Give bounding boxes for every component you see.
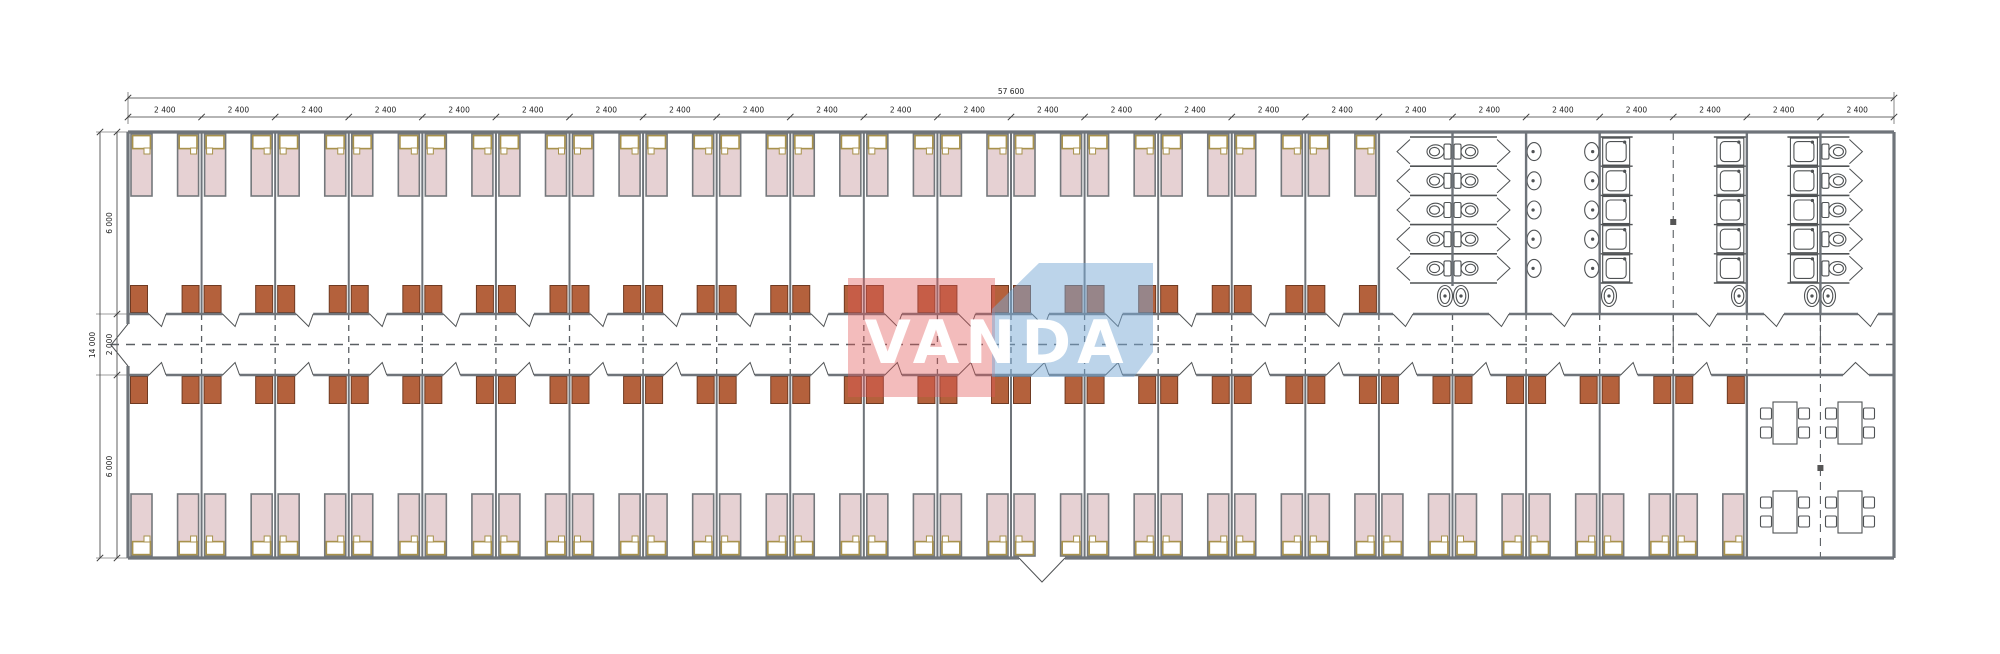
bed-pillow xyxy=(942,542,960,555)
shower-tray-inner xyxy=(1794,142,1814,162)
toilet-bowl-inner xyxy=(1833,264,1843,272)
toilet-icon xyxy=(1454,173,1478,188)
blanket-fold xyxy=(264,536,270,542)
blanket-fold xyxy=(1736,536,1742,542)
door-swing xyxy=(1179,314,1196,327)
wardrobe xyxy=(476,377,493,404)
shower-icon xyxy=(1790,197,1817,224)
stall-door xyxy=(1849,227,1862,251)
toilet-tank xyxy=(1822,173,1829,188)
wardrobe xyxy=(1602,377,1619,404)
dim-module-label: 2 400 xyxy=(375,106,397,115)
shower-icon xyxy=(1790,167,1817,194)
stall-door xyxy=(1397,140,1410,164)
door-swing xyxy=(517,314,534,327)
stall-door xyxy=(1849,198,1862,222)
bed-pillow xyxy=(1430,542,1448,555)
floor-plan-canvas: 57 6002 4002 4002 4002 4002 4002 4002 40… xyxy=(0,0,2000,654)
bed-pillow xyxy=(721,136,739,149)
bed-pillow xyxy=(1062,542,1080,555)
shower-icon xyxy=(1603,167,1630,194)
blanket-fold xyxy=(427,536,433,542)
bed-pillow xyxy=(621,136,639,149)
bed-pillow xyxy=(1283,136,1301,149)
bed-pillow xyxy=(1089,136,1107,149)
shower-drain xyxy=(1811,199,1813,201)
shower-drain xyxy=(1624,170,1626,172)
toilet-bowl-inner xyxy=(1466,206,1476,214)
bed xyxy=(1281,494,1302,556)
door-swing xyxy=(591,314,608,327)
wardrobe xyxy=(793,286,810,313)
wardrobe xyxy=(1161,286,1178,313)
bed-pillow xyxy=(280,542,298,555)
bed xyxy=(251,134,272,196)
bed xyxy=(398,134,419,196)
basin-tap xyxy=(1532,151,1534,153)
washbasin-icon xyxy=(1526,201,1541,220)
blanket-fold xyxy=(280,536,286,542)
bed xyxy=(1061,494,1082,556)
bed-pillow xyxy=(841,542,859,555)
bed-pillow xyxy=(326,136,344,149)
bed-pillow xyxy=(1384,542,1402,555)
chair xyxy=(1761,408,1772,419)
wardrobe xyxy=(572,377,589,404)
wardrobe xyxy=(550,377,567,404)
shower-icon xyxy=(1603,255,1630,282)
shower-tray-inner xyxy=(1720,258,1740,278)
sink-icon xyxy=(1454,286,1469,307)
wardrobe xyxy=(403,286,420,313)
wardrobe xyxy=(278,286,295,313)
bed-pillow xyxy=(868,136,886,149)
blanket-fold xyxy=(706,536,712,542)
bed xyxy=(646,494,667,556)
wardrobe xyxy=(1507,377,1524,404)
blanket-fold xyxy=(648,148,654,154)
shower-tray-inner xyxy=(1720,229,1740,249)
bed xyxy=(1088,134,1109,196)
door-swing xyxy=(738,314,755,327)
sink-icon xyxy=(1438,286,1453,307)
washbasin-icon xyxy=(1585,230,1600,249)
entrance-door-swing xyxy=(1019,558,1065,582)
stall-door xyxy=(1497,140,1510,164)
toilet-icon xyxy=(1822,232,1846,247)
blanket-fold xyxy=(575,148,581,154)
blanket-fold xyxy=(144,536,150,542)
blanket-fold xyxy=(1458,536,1464,542)
washbasin-icon xyxy=(1526,171,1541,190)
shower-tray-inner xyxy=(1606,258,1626,278)
blanket-fold xyxy=(1368,148,1374,154)
bed-pillow xyxy=(1283,542,1301,555)
bed xyxy=(1502,494,1523,556)
toilet-bowl-inner xyxy=(1466,177,1476,185)
wardrobe xyxy=(1212,286,1229,313)
bed xyxy=(1529,494,1550,556)
bed-pillow xyxy=(694,136,712,149)
stall-door xyxy=(1497,198,1510,222)
toilet-bowl-inner xyxy=(1466,235,1476,243)
bed-pillow xyxy=(942,136,960,149)
shower-drain xyxy=(1811,229,1813,231)
wardrobe xyxy=(1676,377,1693,404)
blanket-fold xyxy=(207,148,213,154)
chair xyxy=(1826,497,1837,508)
bed xyxy=(913,134,934,196)
bed-pillow xyxy=(1062,136,1080,149)
dim-module-label: 2 400 xyxy=(1258,106,1280,115)
blanket-fold xyxy=(1074,148,1080,154)
bed-pillow xyxy=(353,542,371,555)
dining-table xyxy=(1773,402,1797,444)
bed-pillow xyxy=(501,542,519,555)
door-swing xyxy=(1621,363,1638,376)
toilet-tank xyxy=(1444,203,1451,218)
dim-module-label: 2 400 xyxy=(228,106,250,115)
bed-pillow xyxy=(1724,542,1742,555)
wardrobe xyxy=(1359,377,1376,404)
bed xyxy=(766,134,787,196)
shower-icon xyxy=(1790,226,1817,253)
bed xyxy=(325,494,346,556)
bed xyxy=(352,134,373,196)
bed xyxy=(546,494,567,556)
bed-pillow xyxy=(1016,542,1034,555)
washbasin-icon xyxy=(1526,230,1541,249)
toilet-tank xyxy=(1454,261,1461,276)
chair xyxy=(1864,497,1875,508)
bed xyxy=(131,134,152,196)
toilet-tank xyxy=(1822,232,1829,247)
blanket-fold xyxy=(1221,536,1227,542)
dim-module-label: 2 400 xyxy=(1037,106,1059,115)
dim-module-label: 2 400 xyxy=(448,106,470,115)
door-swing xyxy=(664,314,681,327)
bed xyxy=(1355,134,1376,196)
blanket-fold xyxy=(926,148,932,154)
door-swing xyxy=(1326,363,1343,376)
toilet-tank xyxy=(1822,144,1829,159)
shower-icon xyxy=(1603,138,1630,165)
toilet-bowl-inner xyxy=(1466,147,1476,155)
toilet-bowl-inner xyxy=(1833,147,1843,155)
door-swing xyxy=(1694,363,1711,376)
wardrobe xyxy=(425,377,442,404)
blanket-fold xyxy=(1000,148,1006,154)
stall-door xyxy=(1497,227,1510,251)
shower-drain xyxy=(1738,229,1740,231)
wardrobe xyxy=(1014,377,1031,404)
toilet-icon xyxy=(1427,261,1451,276)
dim-module-label: 2 400 xyxy=(154,106,176,115)
door-swing xyxy=(591,363,608,376)
bed xyxy=(425,494,446,556)
sink-tap xyxy=(1827,295,1829,297)
shower-tray-inner xyxy=(1794,200,1814,220)
bed-pillow xyxy=(1531,542,1549,555)
toilet-icon xyxy=(1822,173,1846,188)
bed-pillow xyxy=(574,542,592,555)
door-swing xyxy=(1697,314,1717,327)
chair xyxy=(1761,497,1772,508)
chair xyxy=(1826,408,1837,419)
blanket-fold xyxy=(1294,536,1300,542)
door-swing xyxy=(149,314,166,327)
blanket-fold xyxy=(1221,148,1227,154)
bed-pillow xyxy=(1236,136,1254,149)
shower-icon xyxy=(1717,167,1744,194)
bed xyxy=(1235,494,1256,556)
bed-pillow xyxy=(648,542,666,555)
wardrobe xyxy=(719,377,736,404)
bed xyxy=(1382,494,1403,556)
bed xyxy=(987,134,1008,196)
wardrobe xyxy=(425,286,442,313)
bed xyxy=(573,134,594,196)
bed-pillow xyxy=(1310,136,1328,149)
bed xyxy=(793,134,814,196)
toilet-icon xyxy=(1822,144,1846,159)
bed-pillow xyxy=(621,542,639,555)
shower-icon xyxy=(1790,255,1817,282)
wardrobe xyxy=(204,377,221,404)
bed-pillow xyxy=(795,136,813,149)
bed-pillow xyxy=(1577,542,1595,555)
bed-pillow xyxy=(768,542,786,555)
wardrobe xyxy=(1455,377,1472,404)
bed xyxy=(840,494,861,556)
blanket-fold xyxy=(485,536,491,542)
toilet-icon xyxy=(1454,261,1478,276)
blanket-fold xyxy=(632,536,638,542)
chair xyxy=(1864,427,1875,438)
dim-module-label: 2 400 xyxy=(1479,106,1501,115)
blanket-fold xyxy=(706,148,712,154)
wardrobe xyxy=(1065,377,1082,404)
blanket-fold xyxy=(1090,148,1096,154)
dim-module-label: 2 400 xyxy=(1626,106,1648,115)
shower-icon xyxy=(1717,226,1744,253)
dim-module-label: 2 400 xyxy=(301,106,323,115)
door-swing xyxy=(149,363,166,376)
toilet-tank xyxy=(1454,144,1461,159)
toilet-bowl-inner xyxy=(1430,147,1440,155)
bed-pillow xyxy=(1163,542,1181,555)
bed xyxy=(1134,134,1155,196)
blanket-fold xyxy=(207,536,213,542)
dim-height-chain-label: 6 000 xyxy=(105,456,114,478)
wardrobe xyxy=(1087,377,1104,404)
blanket-fold xyxy=(1090,536,1096,542)
blanket-fold xyxy=(501,536,507,542)
bed-pillow xyxy=(400,136,418,149)
bed xyxy=(720,494,741,556)
bed xyxy=(472,134,493,196)
bed xyxy=(1281,134,1302,196)
bed-pillow xyxy=(1357,542,1375,555)
shower-tray-inner xyxy=(1606,142,1626,162)
bed-pillow xyxy=(768,136,786,149)
wardrobe xyxy=(1212,377,1229,404)
bed-pillow xyxy=(841,136,859,149)
wardrobe xyxy=(624,286,641,313)
basin-tap xyxy=(1532,238,1534,240)
wardrobe xyxy=(256,286,273,313)
blanket-fold xyxy=(779,148,785,154)
bed xyxy=(840,134,861,196)
bed-pillow xyxy=(501,136,519,149)
door-swing xyxy=(811,363,828,376)
shower-drain xyxy=(1738,199,1740,201)
sink-icon xyxy=(1732,286,1747,307)
wardrobe xyxy=(550,286,567,313)
blanket-fold xyxy=(559,536,565,542)
dim-overall-width-label: 57 600 xyxy=(998,87,1024,96)
stall-door xyxy=(1397,256,1410,280)
shower-drain xyxy=(1624,199,1626,201)
bed xyxy=(499,494,520,556)
wardrobe xyxy=(771,377,788,404)
blanket-fold xyxy=(354,148,360,154)
sink-icon xyxy=(1821,286,1836,307)
wardrobe xyxy=(793,377,810,404)
blanket-fold xyxy=(795,148,801,154)
bed xyxy=(178,494,199,556)
blanket-fold xyxy=(1074,536,1080,542)
bed-pillow xyxy=(474,542,492,555)
bed xyxy=(278,494,299,556)
toilet-icon xyxy=(1822,261,1846,276)
toilet-bowl-inner xyxy=(1430,206,1440,214)
bed-pillow xyxy=(427,542,445,555)
bed xyxy=(205,134,226,196)
bed xyxy=(940,494,961,556)
logo-layer: VANDA xyxy=(848,263,1153,397)
toilet-bowl-inner xyxy=(1466,264,1476,272)
door-swing xyxy=(1400,363,1417,376)
bed-pillow xyxy=(915,136,933,149)
dim-module-label: 2 400 xyxy=(1405,106,1427,115)
toilet-bowl-inner xyxy=(1430,177,1440,185)
blanket-fold xyxy=(411,148,417,154)
stall-door xyxy=(1397,227,1410,251)
bed-pillow xyxy=(547,136,565,149)
wardrobe xyxy=(1529,377,1546,404)
toilet-bowl-inner xyxy=(1430,264,1440,272)
bed xyxy=(178,134,199,196)
bed-pillow xyxy=(326,542,344,555)
joint-marker xyxy=(1817,465,1823,471)
shower-drain xyxy=(1811,141,1813,143)
blanket-fold xyxy=(191,148,197,154)
wardrobe xyxy=(1286,286,1303,313)
blanket-fold xyxy=(559,148,565,154)
wardrobe xyxy=(329,286,346,313)
basin-tap xyxy=(1592,209,1594,211)
bed-pillow xyxy=(1310,542,1328,555)
dim-module-label: 2 400 xyxy=(963,106,985,115)
wardrobe xyxy=(351,286,368,313)
wardrobe xyxy=(351,377,368,404)
door-swing xyxy=(1474,363,1491,376)
bed-pillow xyxy=(915,542,933,555)
door-swing xyxy=(1179,363,1196,376)
shower-icon xyxy=(1717,138,1744,165)
bed-pillow xyxy=(253,136,271,149)
door-swing xyxy=(370,314,387,327)
wardrobe xyxy=(131,377,148,404)
wardrobe xyxy=(1381,377,1398,404)
blanket-fold xyxy=(191,536,197,542)
blanket-fold xyxy=(779,536,785,542)
toilet-tank xyxy=(1444,232,1451,247)
wardrobe xyxy=(1654,377,1671,404)
wardrobe xyxy=(329,377,346,404)
bed xyxy=(1723,494,1744,556)
bed xyxy=(205,494,226,556)
door-swing xyxy=(296,363,313,376)
bed-pillow xyxy=(206,136,224,149)
toilet-tank xyxy=(1822,261,1829,276)
sink-tap xyxy=(1738,295,1740,297)
washbasin-icon xyxy=(1526,259,1541,278)
bed xyxy=(472,494,493,556)
basin-tap xyxy=(1592,180,1594,182)
wardrobe xyxy=(1286,377,1303,404)
bed-pillow xyxy=(400,542,418,555)
floor-plan-drawing: 57 6002 4002 4002 4002 4002 4002 4002 40… xyxy=(0,0,2000,654)
bed xyxy=(1355,494,1376,556)
blanket-fold xyxy=(942,148,948,154)
bed-pillow xyxy=(574,136,592,149)
door-swing xyxy=(1489,314,1509,327)
chair xyxy=(1826,516,1837,527)
dim-module-label: 2 400 xyxy=(743,106,765,115)
wardrobe xyxy=(256,377,273,404)
shower-drain xyxy=(1624,258,1626,260)
bed xyxy=(1308,134,1329,196)
door-swing xyxy=(1547,363,1564,376)
dim-height-chain-label: 6 000 xyxy=(105,212,114,234)
door-swing xyxy=(296,314,313,327)
dim-module-label: 2 400 xyxy=(1846,106,1868,115)
bed-pillow xyxy=(1209,542,1227,555)
bed-pillow xyxy=(427,136,445,149)
door-swing xyxy=(1393,314,1413,327)
shower-icon xyxy=(1603,197,1630,224)
shower-drain xyxy=(1738,258,1740,260)
sink-tap xyxy=(1444,295,1446,297)
bed-pillow xyxy=(253,542,271,555)
basin-tap xyxy=(1532,209,1534,211)
wardrobe xyxy=(278,377,295,404)
bed xyxy=(278,134,299,196)
bed xyxy=(693,134,714,196)
shower-drain xyxy=(1738,141,1740,143)
toilet-bowl-inner xyxy=(1833,206,1843,214)
blanket-fold xyxy=(1016,536,1022,542)
dim-module-label: 2 400 xyxy=(1773,106,1795,115)
dining-table-group xyxy=(1761,402,1810,444)
blanket-fold xyxy=(1310,148,1316,154)
wardrobe xyxy=(131,286,148,313)
blanket-fold xyxy=(1147,536,1153,542)
bed xyxy=(1161,494,1182,556)
basin-tap xyxy=(1532,267,1534,269)
